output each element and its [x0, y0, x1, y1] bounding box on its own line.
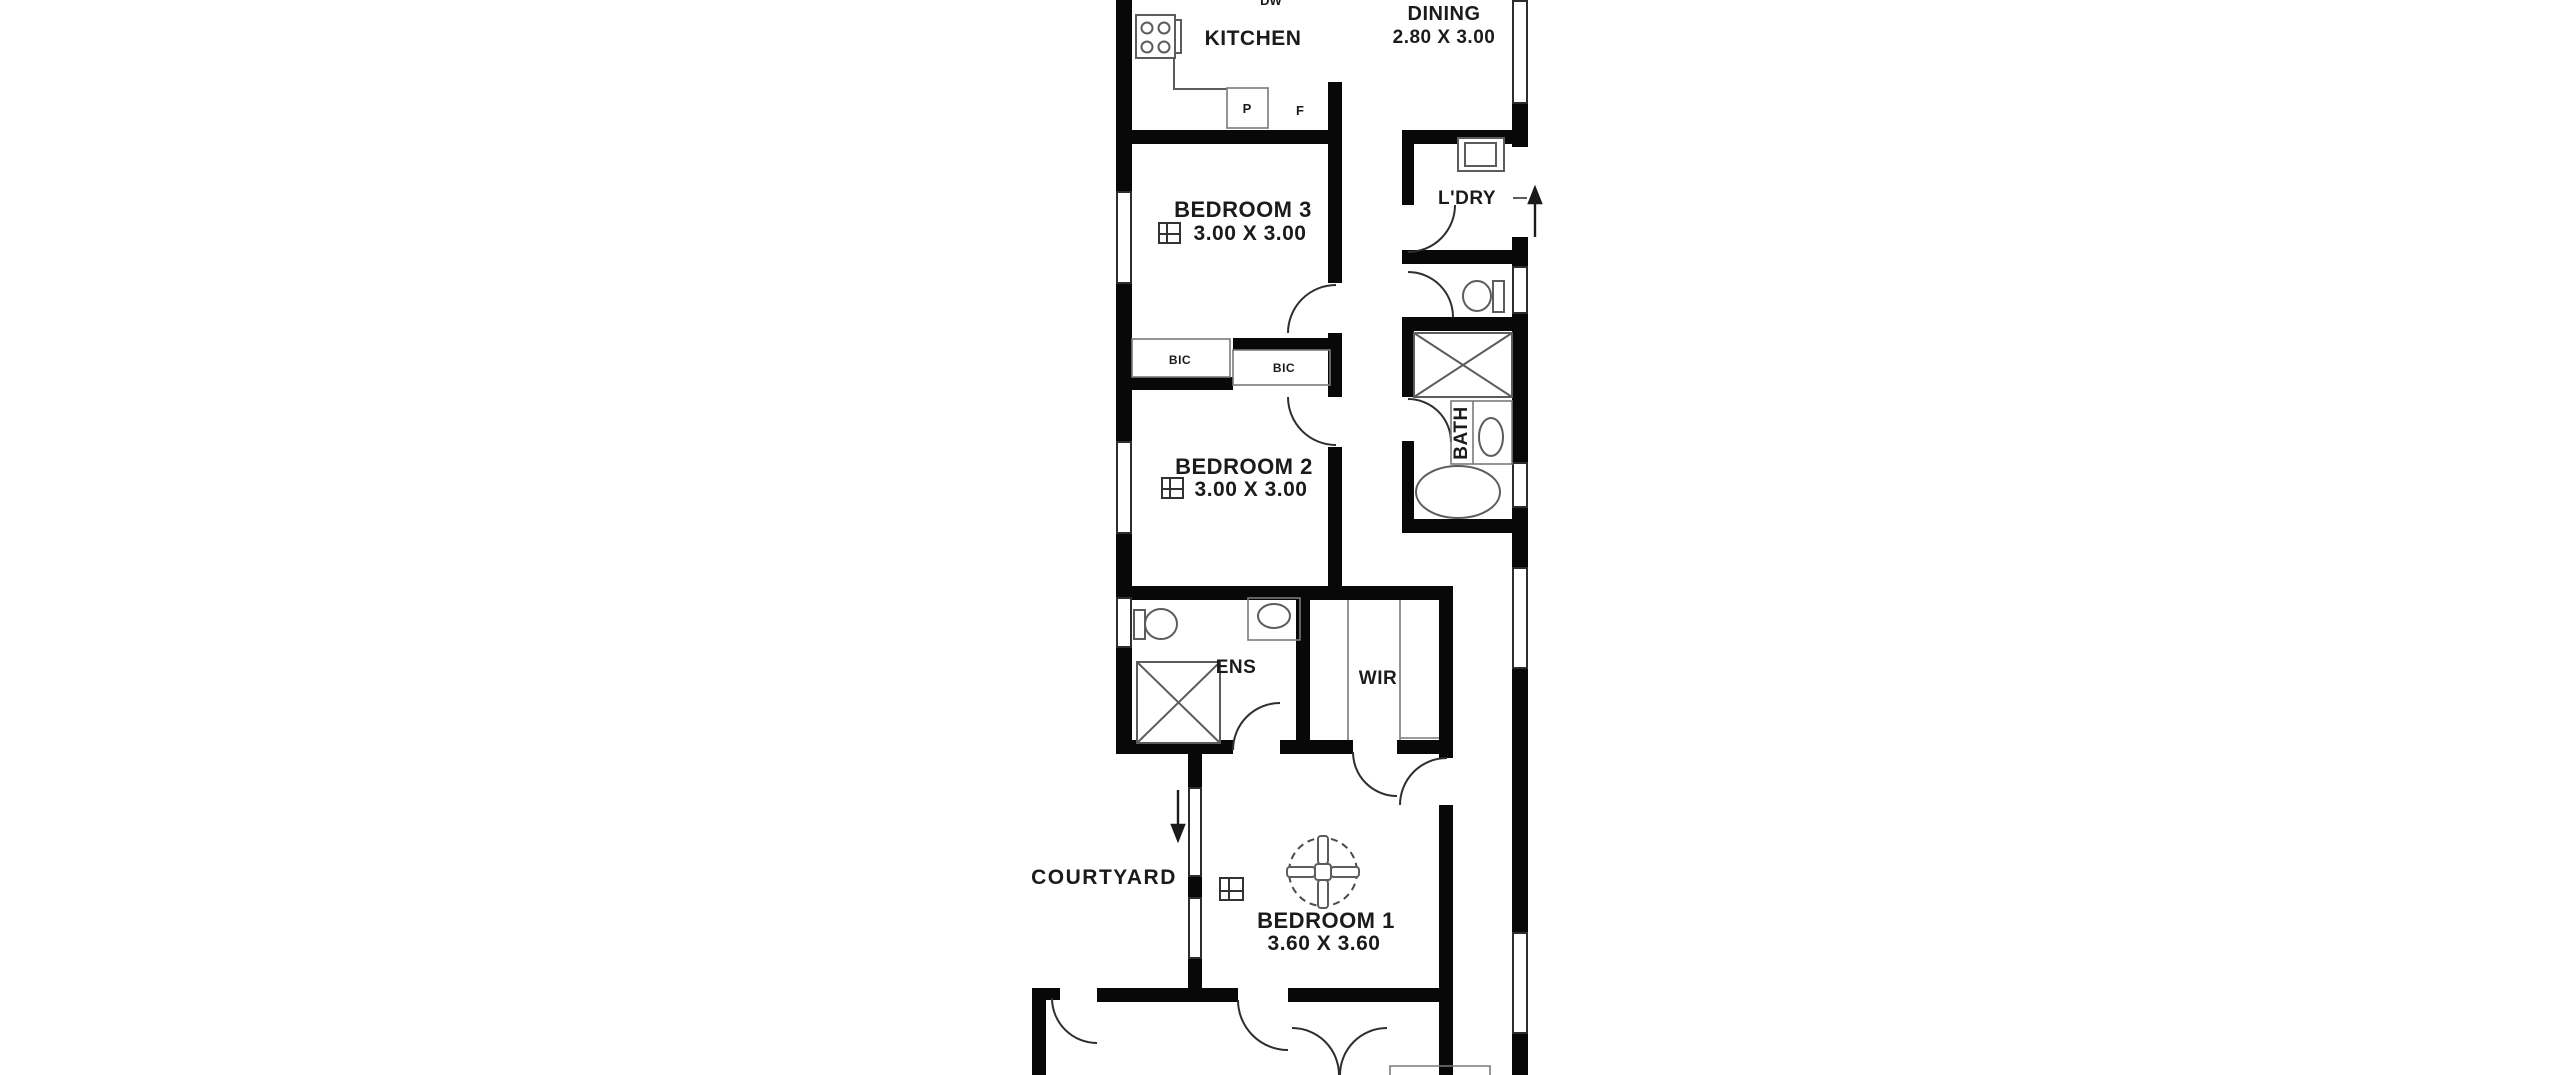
ens-vanity-basin-icon [1248, 598, 1300, 640]
door-arc-wc [1408, 272, 1453, 317]
window-bath [1513, 463, 1527, 507]
door-arc-bedroom3 [1288, 285, 1336, 333]
room-dims-bedroom1: 3.60 X 3.60 [1268, 932, 1381, 955]
bath-shower-icon [1414, 333, 1512, 397]
fridge-label: F [1296, 103, 1304, 118]
kitchen-bench-edge [1174, 58, 1227, 89]
wall-courtyard-3 [1188, 958, 1202, 1002]
closet-label-bic-left: BIC [1169, 353, 1191, 367]
room-dims-bedroom2: 3.00 X 3.00 [1195, 478, 1308, 501]
wc-fixtures [1463, 281, 1504, 312]
door-arc-double-left [1292, 1028, 1339, 1075]
window-bedroom2 [1117, 442, 1131, 533]
wall-bottom-right [1288, 988, 1453, 1002]
window-hall-upper [1513, 568, 1527, 668]
window-wc [1513, 267, 1527, 313]
room-label-laundry: L'DRY [1438, 188, 1496, 209]
wall-bath-left-lower [1402, 441, 1414, 519]
entry-arrow-down-icon [1172, 790, 1184, 840]
wall-fence-left [1032, 988, 1046, 1075]
wall-bedroom3-right [1328, 130, 1342, 283]
floorplan-svg: DW KITCHEN DINING 2.80 X 3.00 P F BEDROO… [0, 0, 2560, 1075]
door-arc-ens [1233, 703, 1280, 750]
wall-kitchen-bedroom3 [1116, 130, 1342, 144]
wall-bath-left-upper [1402, 331, 1414, 397]
door-arc-bedroom2 [1288, 397, 1336, 445]
window-symbol-icon-bedroom1 [1220, 878, 1243, 900]
door-arc-double-right [1340, 1028, 1387, 1075]
room-dims-bedroom3: 3.00 X 3.00 [1194, 222, 1307, 245]
door-arc-courtyard-gate [1052, 998, 1097, 1043]
window-symbol-icon-bedroom3 [1159, 223, 1180, 243]
wall-laundry-left [1402, 144, 1414, 205]
room-label-bedroom2: BEDROOM 2 [1175, 454, 1313, 479]
wall-right-6 [1512, 1033, 1528, 1075]
wall-bath-bottom [1402, 519, 1528, 533]
room-label-wir: WIR [1359, 668, 1397, 689]
window-courtyard-1 [1189, 788, 1201, 876]
window-courtyard-2 [1189, 898, 1201, 958]
floorplan-canvas: DW KITCHEN DINING 2.80 X 3.00 P F BEDROO… [0, 0, 2560, 1075]
room-label-dining: DINING [1408, 3, 1481, 25]
window-bedroom3 [1117, 192, 1131, 283]
window-symbol-icon-bedroom2 [1162, 478, 1183, 498]
wall-ens-bottom-mid [1280, 740, 1353, 754]
wall-right-5 [1512, 668, 1528, 933]
window-ens [1117, 598, 1131, 647]
door-arc-bath [1408, 399, 1451, 442]
door-arc-bedroom1 [1400, 758, 1447, 805]
wall-bedroom1-right [1439, 805, 1453, 1075]
cooktop-icon [1136, 15, 1181, 58]
closet-label-bic-right: BIC [1273, 361, 1295, 375]
room-label-courtyard: COURTYARD [1031, 866, 1177, 889]
ens-toilet-icon [1134, 609, 1177, 639]
ens-shower-icon [1137, 662, 1220, 743]
wall-ens-wir-divider [1296, 600, 1310, 740]
laundry-sink-icon [1458, 138, 1504, 171]
wall-wir-right [1439, 600, 1453, 758]
wall-bedroom2-right [1328, 447, 1342, 586]
door-arc-bottom-room [1238, 1000, 1288, 1050]
wall-bottom-left [1097, 988, 1238, 1002]
wall-bic-right-top [1233, 338, 1330, 350]
wall-left-4 [1116, 647, 1132, 754]
wall-right-3 [1512, 313, 1528, 463]
window-hall-lower [1513, 933, 1527, 1033]
wall-courtyard-2 [1188, 876, 1202, 898]
ceiling-fan-icon [1287, 836, 1359, 908]
exit-arrow-up-icon [1529, 188, 1541, 237]
wall-right-4 [1512, 507, 1528, 568]
laundry-fixtures [1458, 138, 1504, 171]
room-label-ens: ENS [1216, 657, 1257, 678]
wall-laundry-wc [1402, 250, 1528, 264]
wc-toilet-icon [1463, 281, 1504, 312]
room-label-kitchen: KITCHEN [1205, 27, 1302, 50]
wall-wc-bath [1402, 317, 1528, 331]
room-label-bath: BATH [1451, 406, 1472, 459]
wall-left-2 [1116, 283, 1132, 442]
door-arc-laundry [1408, 205, 1455, 252]
room-label-bedroom1: BEDROOM 1 [1257, 908, 1395, 933]
door-arc-wir [1353, 752, 1397, 796]
wall-left-1 [1116, 0, 1132, 192]
dishwasher-label: DW [1260, 0, 1282, 8]
wall-courtyard-1 [1188, 754, 1202, 788]
room-dims-dining: 2.80 X 3.00 [1393, 27, 1496, 48]
wall-bic-left-bottom [1116, 377, 1233, 390]
bathtub-icon [1416, 466, 1500, 518]
window-dining [1513, 1, 1527, 103]
room-label-bedroom3: BEDROOM 3 [1174, 197, 1312, 222]
pantry-label: P [1243, 101, 1252, 116]
